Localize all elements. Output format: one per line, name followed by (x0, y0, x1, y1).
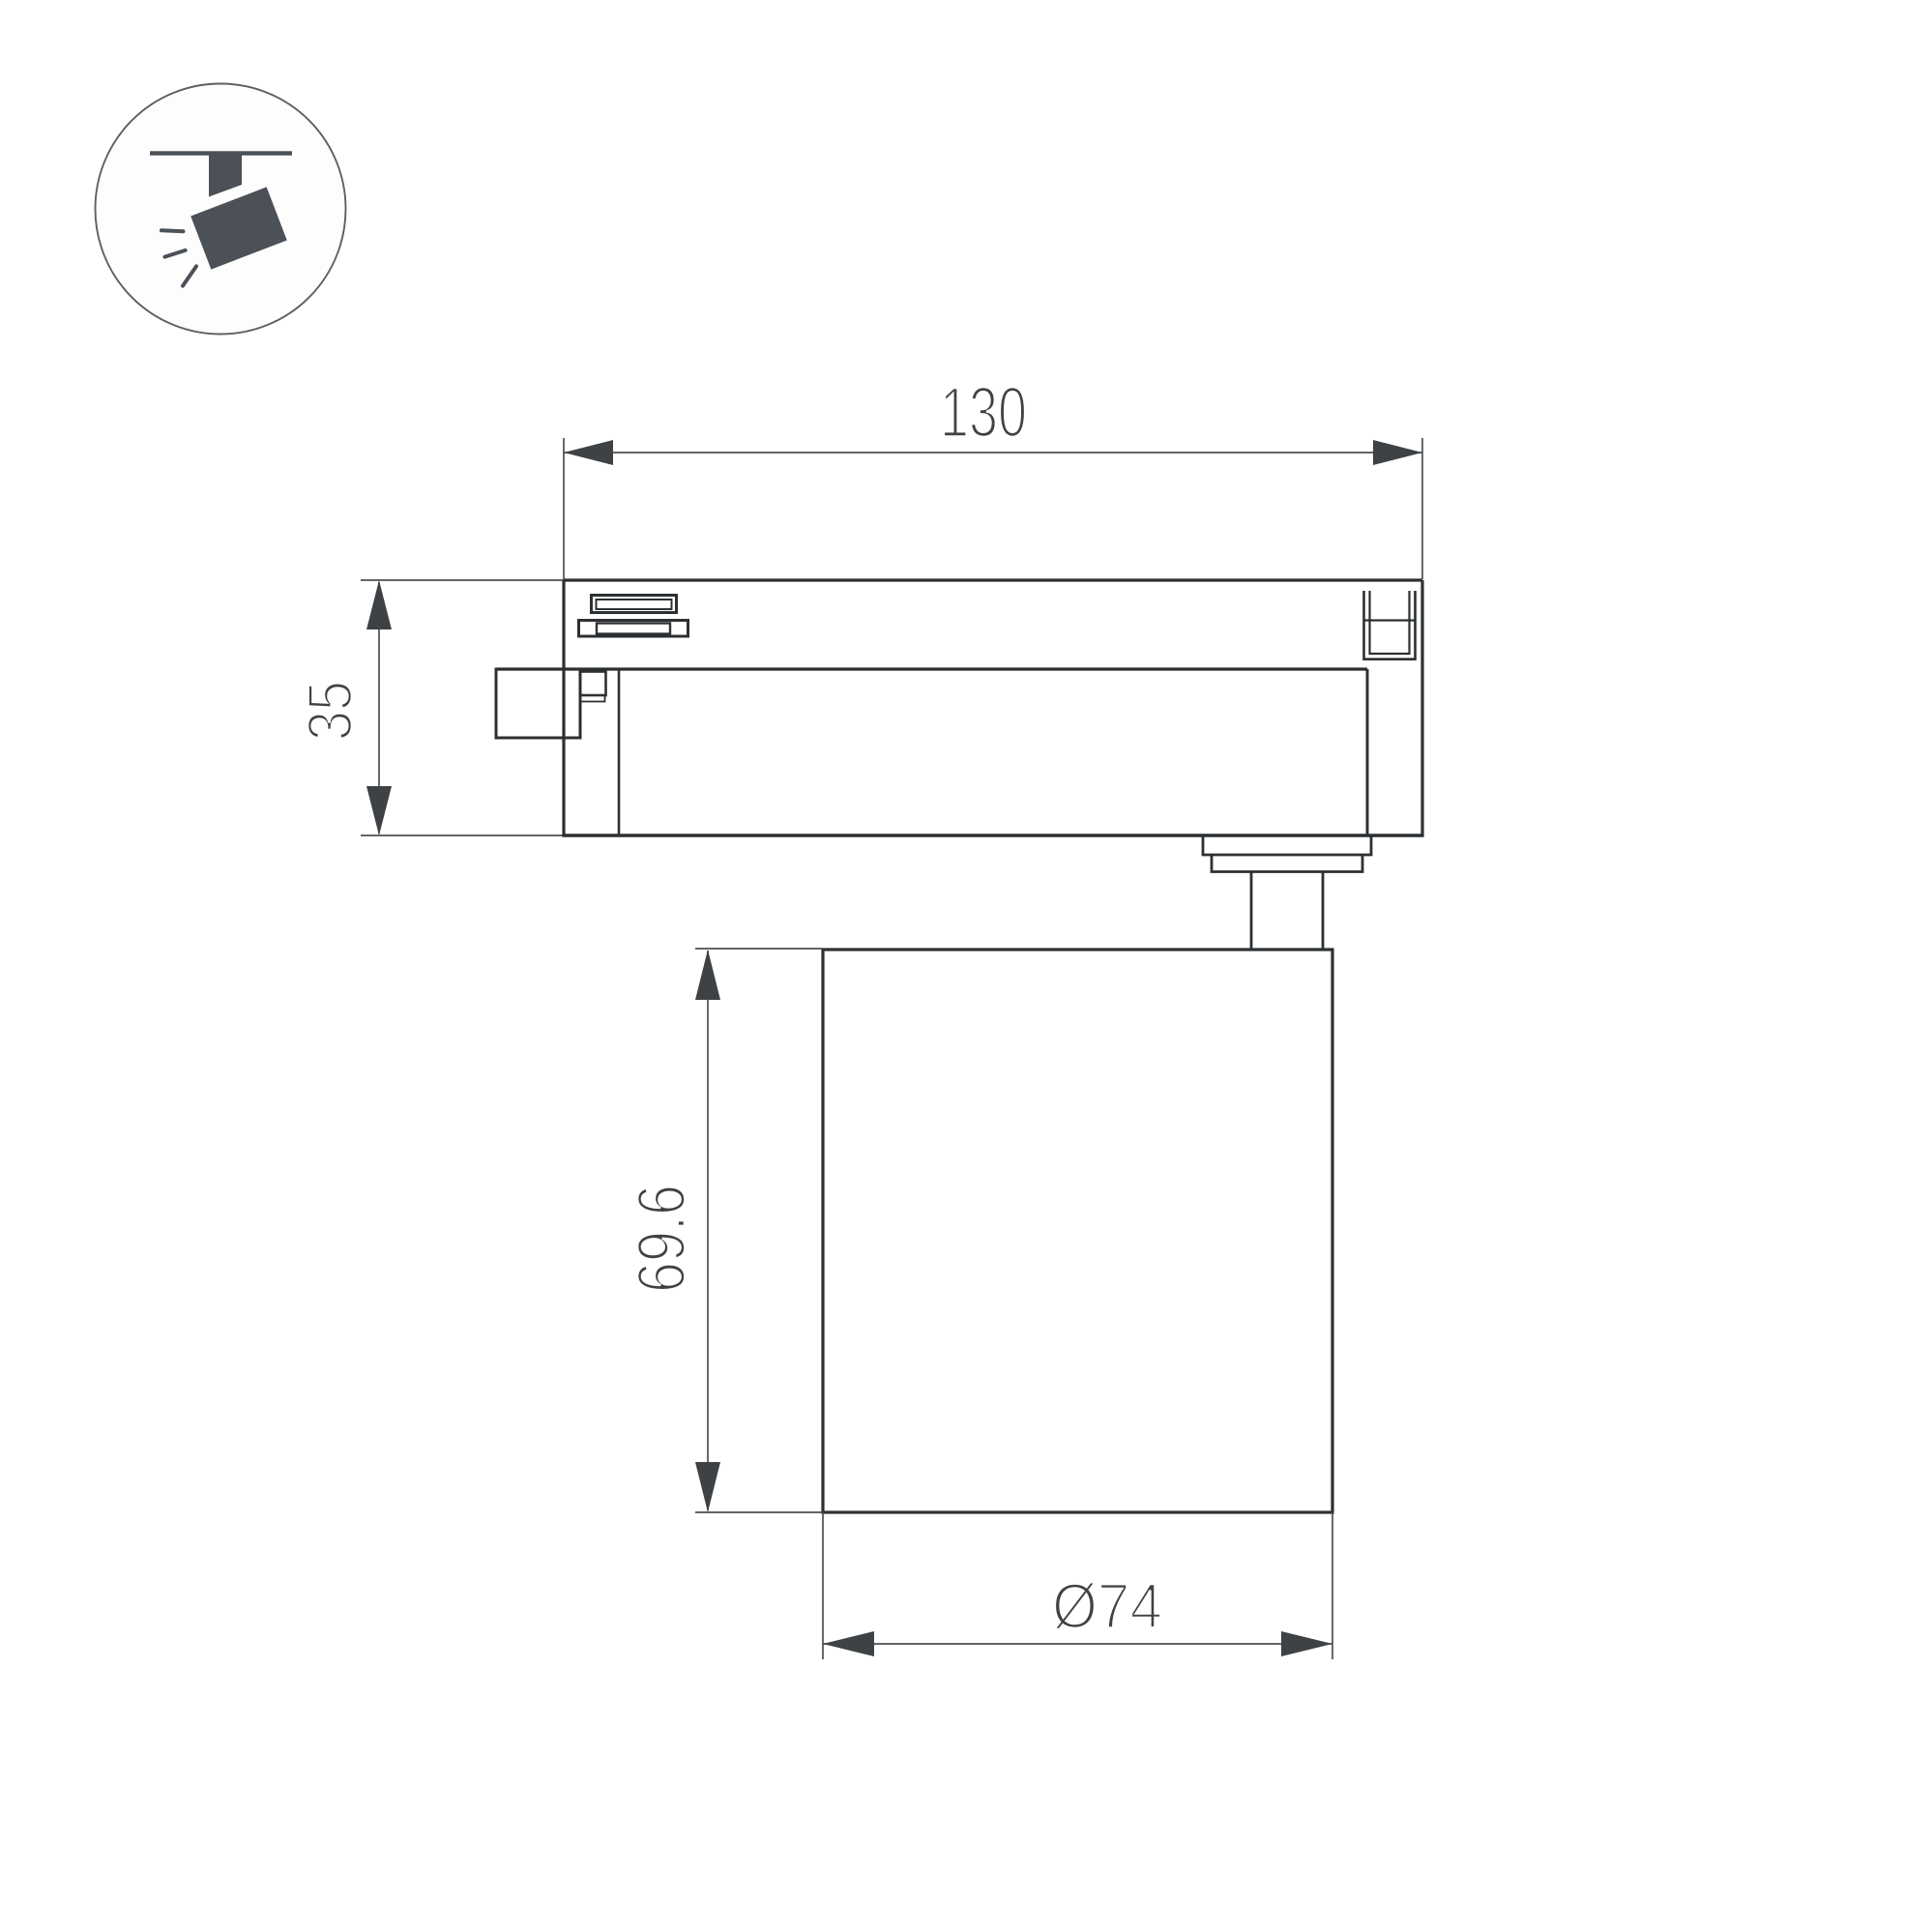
svg-text:35: 35 (295, 681, 366, 741)
svg-text:130: 130 (940, 374, 1027, 453)
svg-text:Ø74: Ø74 (1052, 1570, 1162, 1642)
svg-text:69.6: 69.6 (624, 1185, 699, 1293)
